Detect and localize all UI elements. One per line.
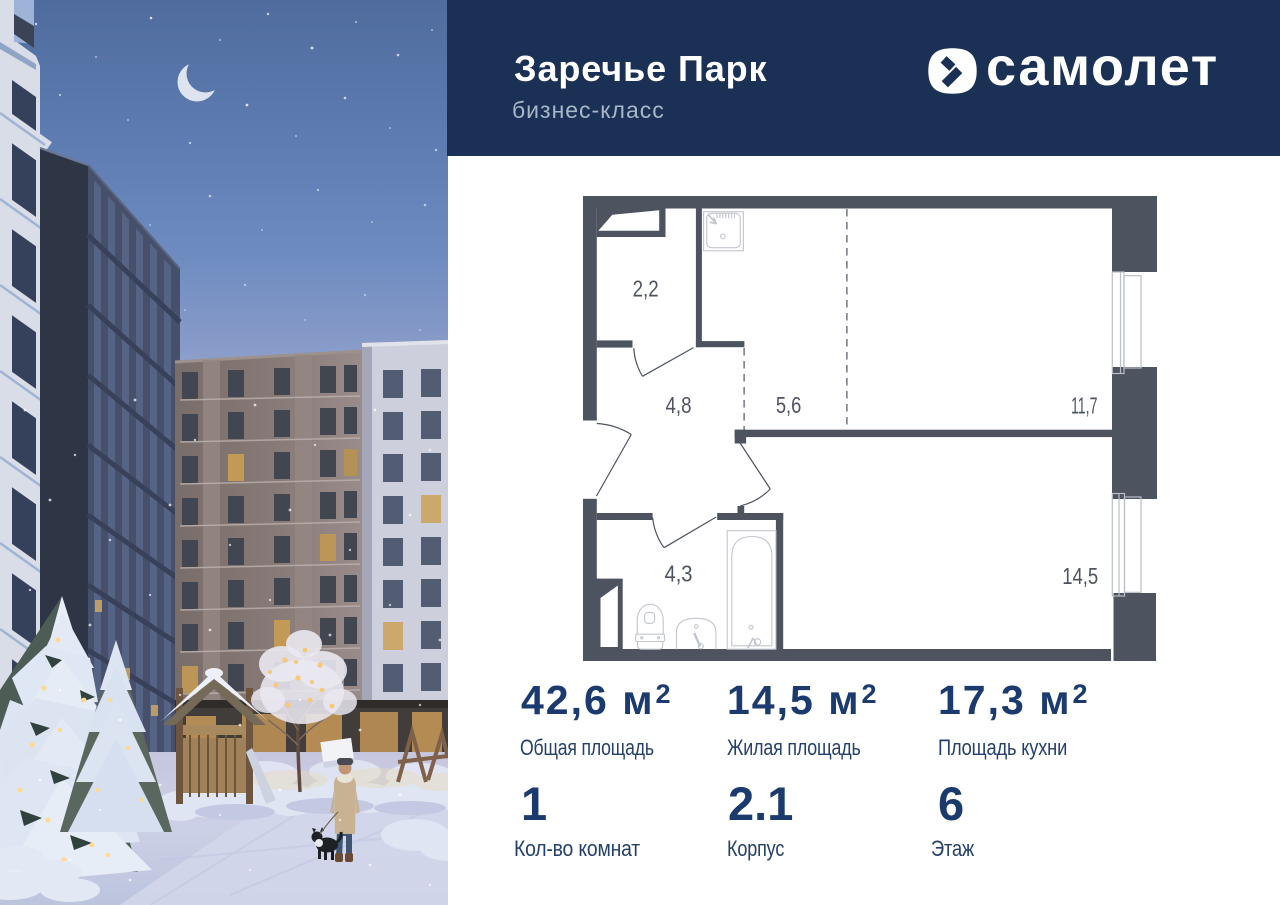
- svg-text:14,5: 14,5: [1062, 563, 1098, 589]
- svg-text:2,2: 2,2: [633, 275, 659, 301]
- svg-text:11,7: 11,7: [1071, 393, 1098, 419]
- svg-text:4,3: 4,3: [665, 561, 693, 587]
- svg-text:4,8: 4,8: [666, 392, 692, 418]
- svg-text:5,6: 5,6: [776, 392, 802, 418]
